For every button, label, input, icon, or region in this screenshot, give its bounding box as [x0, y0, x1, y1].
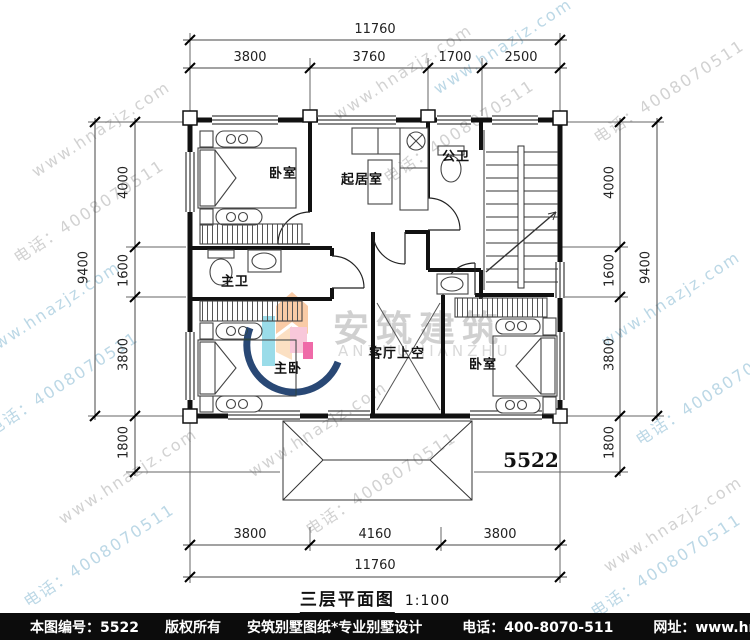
dim-right-seg-3: 3800: [603, 325, 618, 385]
drawing-sheet: www.hnazjz.com 电话：4008070511 www.hnazjz.…: [0, 0, 750, 640]
porch-roof: [283, 421, 472, 500]
dim-bottom-seg-3: 3800: [483, 527, 516, 542]
dim-bottom-overall: 11760: [354, 558, 395, 573]
floorplan-drawing: [0, 0, 750, 640]
dim-bottom-seg-2: 4160: [358, 527, 391, 542]
staircase: [484, 130, 558, 290]
footer-copyright: 版权所有: [165, 617, 221, 637]
room-label-public-bath: 公卫: [442, 146, 470, 165]
room-label-bedroom-bottom: 卧室: [469, 354, 497, 373]
dim-right-seg-2: 1600: [603, 241, 618, 301]
footer-phone: 电话：400-8070-511: [462, 617, 613, 637]
dim-top-seg-1: 3800: [233, 50, 266, 65]
room-label-living: 起居室: [341, 169, 383, 188]
dim-top-seg-2: 3760: [352, 50, 385, 65]
dim-left-seg-3: 3800: [117, 325, 132, 385]
dim-left-overall: 9400: [77, 238, 92, 298]
drawing-title: 三层平面图: [300, 585, 395, 614]
room-label-void: 客厅上空: [369, 343, 425, 362]
dim-bottom-seg-1: 3800: [233, 527, 266, 542]
dim-right-seg-4: 1800: [603, 413, 618, 473]
dim-top-seg-4: 2500: [504, 50, 537, 65]
dim-left-seg-4: 1800: [117, 413, 132, 473]
dim-right-seg-1: 4000: [603, 153, 618, 213]
dim-left-seg-2: 1600: [117, 241, 132, 301]
dim-right-overall: 9400: [639, 238, 654, 298]
room-label-master-bedroom: 主卧: [274, 358, 302, 377]
plan-number: 5522: [503, 448, 559, 472]
footer-site: 网址：www.hnazjz.com: [653, 617, 750, 637]
dim-left-seg-1: 4000: [117, 153, 132, 213]
drawing-title-block: 三层平面图 1:100: [300, 585, 450, 614]
dim-top-overall: 11760: [354, 22, 395, 37]
footer-studio: 安筑别墅图纸*专业别墅设计: [247, 617, 422, 637]
room-label-master-bath: 主卫: [221, 271, 249, 290]
drawing-scale: 1:100: [405, 593, 450, 609]
footer-bar: 本图编号：5522 版权所有 安筑别墅图纸*专业别墅设计 电话：400-8070…: [0, 613, 750, 640]
room-label-bedroom-top: 卧室: [269, 163, 297, 182]
dim-top-seg-3: 1700: [438, 50, 471, 65]
footer-sheet-id: 本图编号：5522: [30, 617, 139, 637]
